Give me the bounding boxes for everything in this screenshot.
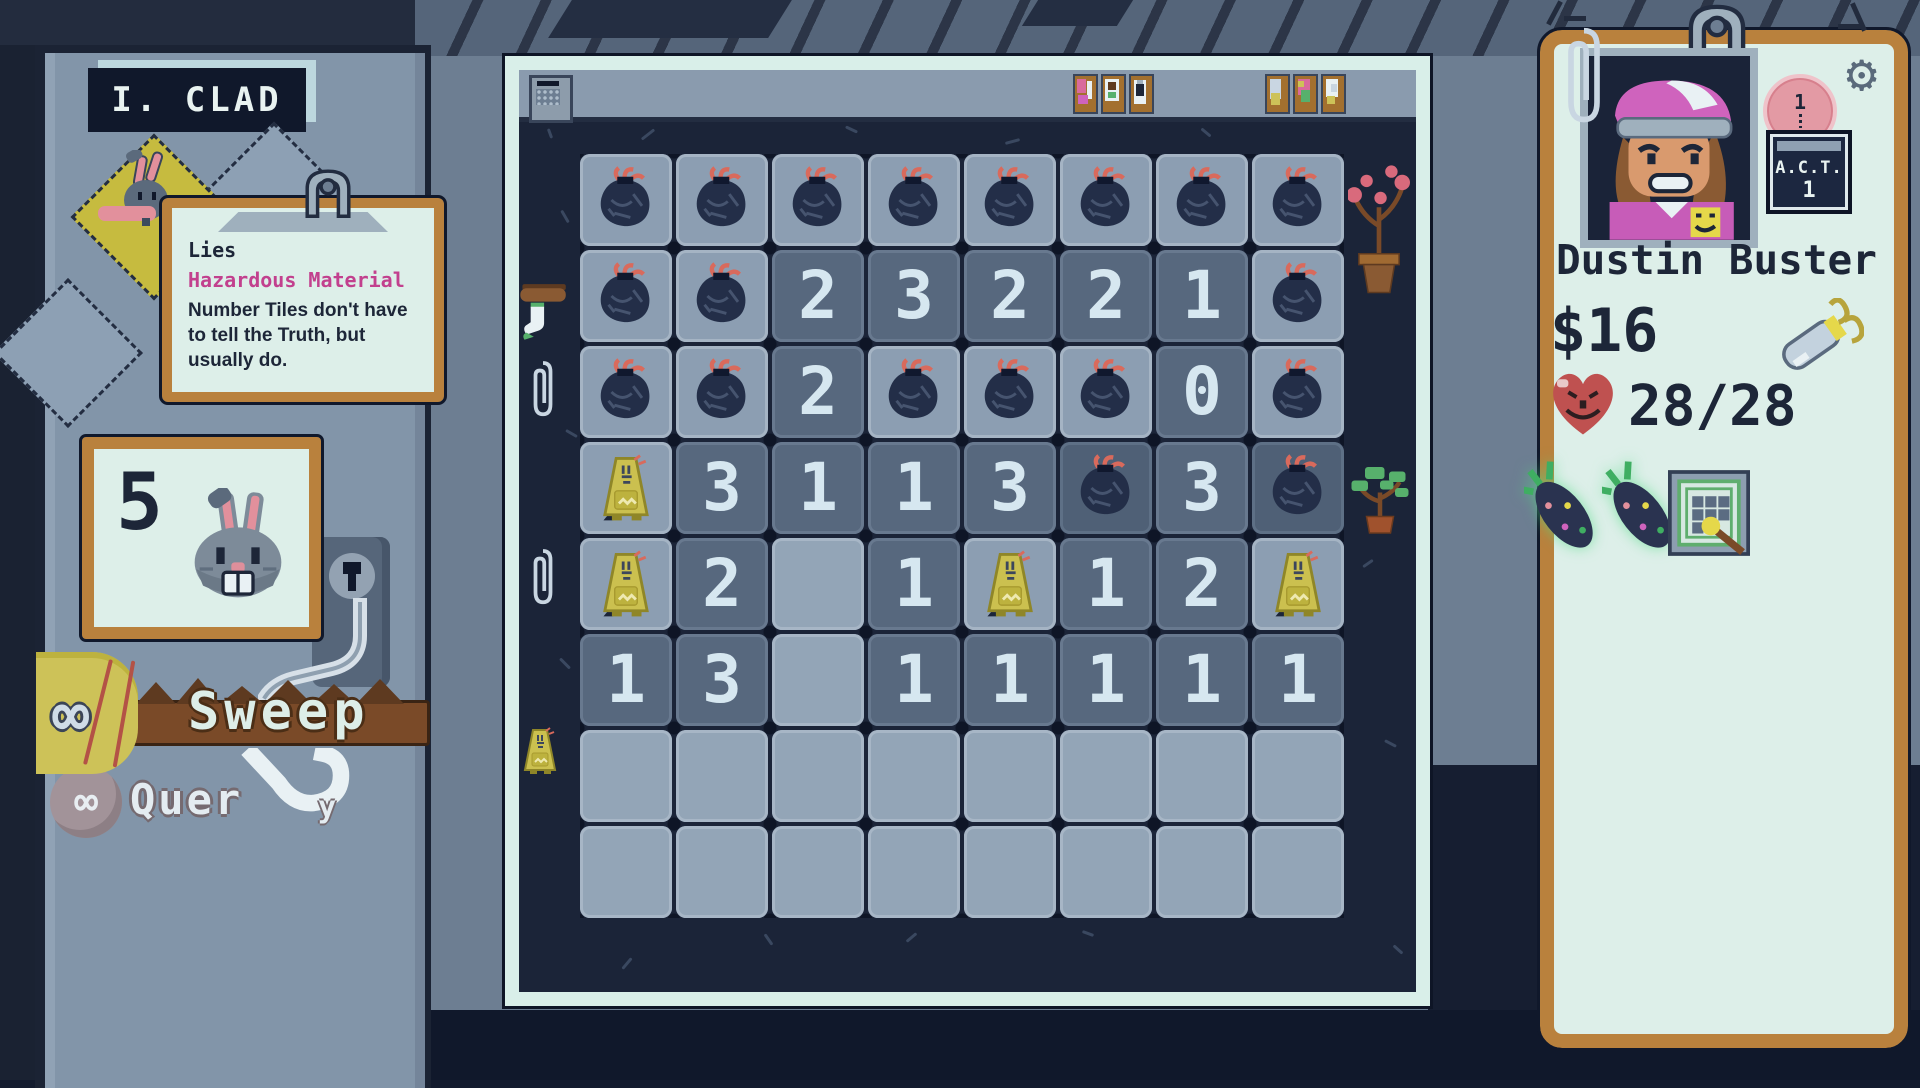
hanging-wire [1564,16,1586,21]
bomb-bag-icon [594,261,658,331]
bomb-bag-icon [978,165,1042,235]
bomb-bag-icon [594,357,658,427]
query-hook-icon[interactable] [238,748,356,858]
keyhole-icon [329,553,375,599]
tile-r2-c8[interactable] [1252,250,1344,342]
bomb-bag-icon [690,165,754,235]
sweep-button[interactable]: Sweep [188,682,370,742]
tile-r1-c4[interactable] [868,154,960,246]
ceiling-vent [1022,0,1133,26]
tooltip-body: Number Tiles don't have to tell the Trut… [188,298,420,373]
wall-poster-icon [1101,74,1126,114]
tile-r5-c3[interactable] [772,538,864,630]
tile-r8-c2[interactable] [676,826,768,918]
tile-number: 3 [894,250,934,342]
health-value: 28/28 [1628,374,1797,439]
poster-group [1073,74,1154,114]
tile-number: 1 [894,442,934,534]
tile-r5-c4[interactable]: 1 [868,538,960,630]
bomb-bag-icon [786,165,850,235]
tile-r5-c5[interactable] [964,538,1056,630]
bomb-bag-icon [1266,261,1330,331]
query-button[interactable]: Quer [130,775,243,824]
screen-left-edge [0,0,35,1080]
bomb-bag-icon [1170,165,1234,235]
tile-r5-c8[interactable] [1252,538,1344,630]
tile-r1-c7[interactable] [1156,154,1248,246]
tile-number: 3 [990,442,1030,534]
caution-sign-icon [595,548,657,620]
tooltip-clipboard: Lies Hazardous Material Number Tiles don… [162,198,444,402]
clipboard-clip-icon [298,166,358,218]
shoe-sock-icon [514,282,568,346]
tile-r4-c8[interactable] [1252,442,1344,534]
query-stone-icon[interactable]: ∞ [50,766,122,838]
money-value: $16 [1550,296,1658,366]
tile-r8-c5[interactable] [964,826,1056,918]
caution-sign-small-icon [518,724,562,782]
tile-number: 1 [990,634,1030,726]
tile-r8-c8[interactable] [1252,826,1344,918]
tile-number: 1 [1086,538,1126,630]
tile-r4-c5[interactable]: 3 [964,442,1056,534]
tile-number: 1 [606,634,646,726]
query-button-suffix: y [318,790,336,825]
bomb-bag-icon [1266,453,1330,523]
mini-door-icon [529,75,573,123]
tile-number: 0 [1182,346,1222,438]
caution-sign-icon [1267,548,1329,620]
tile-r1-c6[interactable] [1060,154,1152,246]
hanging-wire [1838,24,1862,29]
tile-number: 2 [1182,538,1222,630]
tile-r1-c1[interactable] [580,154,672,246]
tile-r8-c1[interactable] [580,826,672,918]
tile-r1-c5[interactable] [964,154,1056,246]
caution-sign-icon [979,548,1041,620]
tile-r6-c3[interactable] [772,634,864,726]
tile-r4-c2[interactable]: 3 [676,442,768,534]
tile-r4-c6[interactable] [1060,442,1152,534]
tile-r4-c3[interactable]: 1 [772,442,864,534]
tile-r1-c2[interactable] [676,154,768,246]
tile-r2-c7[interactable]: 1 [1156,250,1248,342]
tile-number: 2 [798,250,838,342]
tile-r2-c3[interactable]: 2 [772,250,864,342]
tile-r3-c6[interactable] [1060,346,1152,438]
tooltip-subtitle: Hazardous Material [188,268,434,292]
bomb-bag-icon [690,261,754,331]
tile-r1-c8[interactable] [1252,154,1344,246]
tile-r6-c1[interactable]: 1 [580,634,672,726]
tile-number: 2 [1086,250,1126,342]
tile-r7-c2[interactable] [676,730,768,822]
tile-number: 1 [894,634,934,726]
bomb-bag-icon [1074,165,1138,235]
tile-r2-c4[interactable]: 3 [868,250,960,342]
bomb-bag-icon [1266,357,1330,427]
health-heart-icon [1544,366,1622,438]
caution-sign-icon [518,724,562,778]
tile-r2-c1[interactable] [580,250,672,342]
tile-r1-c3[interactable] [772,154,864,246]
paperclip-icon [1562,22,1606,126]
pin-value: 1 [1794,90,1806,114]
bunny-face-icon [188,488,288,600]
tile-number: 2 [990,250,1030,342]
tile-r3-c7[interactable]: 0 [1156,346,1248,438]
tile-number: 1 [894,538,934,630]
tile-r7-c4[interactable] [868,730,960,822]
tile-r6-c8[interactable]: 1 [1252,634,1344,726]
tile-number: 1 [1086,634,1126,726]
tile-r6-c2[interactable]: 3 [676,634,768,726]
character-portrait [1580,48,1758,248]
wall-poster-icon [1129,74,1154,114]
act-value: 1 [1770,178,1848,203]
tile-number: 1 [1182,250,1222,342]
wall-poster-icon [1321,74,1346,114]
tile-number: 2 [798,346,838,438]
tile-r3-c4[interactable] [868,346,960,438]
tile-r3-c2[interactable] [676,346,768,438]
bunny-counter-value: 5 [116,458,163,548]
paperclip-icon [530,546,556,606]
bomb-bag-icon [1266,165,1330,235]
bomb-bag-icon [978,357,1042,427]
portrait-icon [1588,56,1750,240]
tile-number: 3 [702,634,742,726]
infinity-icon: ∞ [52,678,89,751]
gear-icon[interactable]: ⚙ [1846,48,1877,100]
poster-group [1265,74,1346,114]
tile-r6-c7[interactable]: 1 [1156,634,1248,726]
character-name: Dustin Buster [1556,236,1906,284]
tile-r6-c6[interactable]: 1 [1060,634,1152,726]
bomb-bag-icon [1074,357,1138,427]
tile-r7-c3[interactable] [772,730,864,822]
tile-r4-c1[interactable] [580,442,672,534]
door-name-label: I. CLAD [111,80,282,120]
tile-r8-c6[interactable] [1060,826,1152,918]
tile-r3-c3[interactable]: 2 [772,346,864,438]
act-label: A.C.T. [1770,158,1848,178]
tile-r5-c6[interactable]: 1 [1060,538,1152,630]
tile-r3-c5[interactable] [964,346,1056,438]
tile-r2-c6[interactable]: 2 [1060,250,1152,342]
tile-number: 3 [702,442,742,534]
infinity-icon: ∞ [74,779,98,825]
tile-number: 1 [798,442,838,534]
tile-r7-c6[interactable] [1060,730,1152,822]
bonsai-icon [1350,458,1410,536]
flower-pot-icon [1348,160,1410,332]
tile-r8-c4[interactable] [868,826,960,918]
tile-r2-c5[interactable]: 2 [964,250,1056,342]
tile-r6-c4[interactable]: 1 [868,634,960,726]
bomb-bag-icon [882,357,946,427]
caution-sign-icon [595,452,657,524]
bomb-bag-icon [594,165,658,235]
grid-picture-item-icon[interactable] [1668,470,1750,556]
tile-r5-c1[interactable] [580,538,672,630]
tile-r7-c1[interactable] [580,730,672,822]
paperclip-icon [530,358,556,418]
tile-r8-c7[interactable] [1156,826,1248,918]
bomb-bag-icon [1074,453,1138,523]
tooltip-title: Lies [188,238,434,262]
minesweeper-grid: 23221203113321121311111 [580,154,1344,918]
wall-poster-icon [1073,74,1098,114]
ceiling-vent [548,0,792,38]
bomb-bag-icon [690,357,754,427]
tile-r7-c5[interactable] [964,730,1056,822]
tile-r8-c3[interactable] [772,826,864,918]
tile-r2-c2[interactable] [676,250,768,342]
tile-r4-c4[interactable]: 1 [868,442,960,534]
tile-r6-c5[interactable]: 1 [964,634,1056,726]
tile-r7-c7[interactable] [1156,730,1248,822]
tile-r4-c7[interactable]: 3 [1156,442,1248,534]
tile-number: 2 [702,538,742,630]
dark-carrot-item-icon[interactable] [1524,458,1608,560]
bomb-bag-icon [882,165,946,235]
wall-poster-icon [1293,74,1318,114]
whistle-item-icon[interactable] [1772,298,1864,380]
tile-r5-c7[interactable]: 2 [1156,538,1248,630]
tile-r7-c8[interactable] [1252,730,1344,822]
tile-r3-c1[interactable] [580,346,672,438]
wall-poster-icon [1265,74,1290,114]
tile-r5-c2[interactable]: 2 [676,538,768,630]
act-badge: A.C.T. 1 [1766,130,1852,214]
tile-r3-c8[interactable] [1252,346,1344,438]
tile-number: 1 [1278,634,1318,726]
ceiling-dark-corner [0,0,415,45]
tile-number: 3 [1182,442,1222,534]
tile-number: 1 [1182,634,1222,726]
